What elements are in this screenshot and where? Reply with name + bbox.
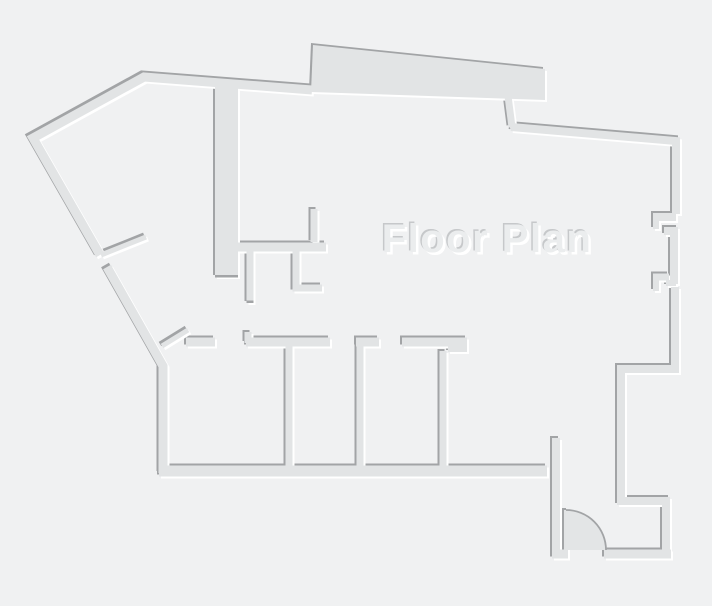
floor-plan-canvas: Floor Plan Floor Plan Floor Plan [0,0,712,606]
wall-end-cap [247,301,254,304]
wall-end-cap [215,275,238,278]
walls-layer [33,45,679,558]
plan-details [215,275,606,550]
floor-plan-title: Floor Plan [382,217,593,261]
floor-plan: Floor Plan Floor Plan Floor Plan [0,0,712,606]
